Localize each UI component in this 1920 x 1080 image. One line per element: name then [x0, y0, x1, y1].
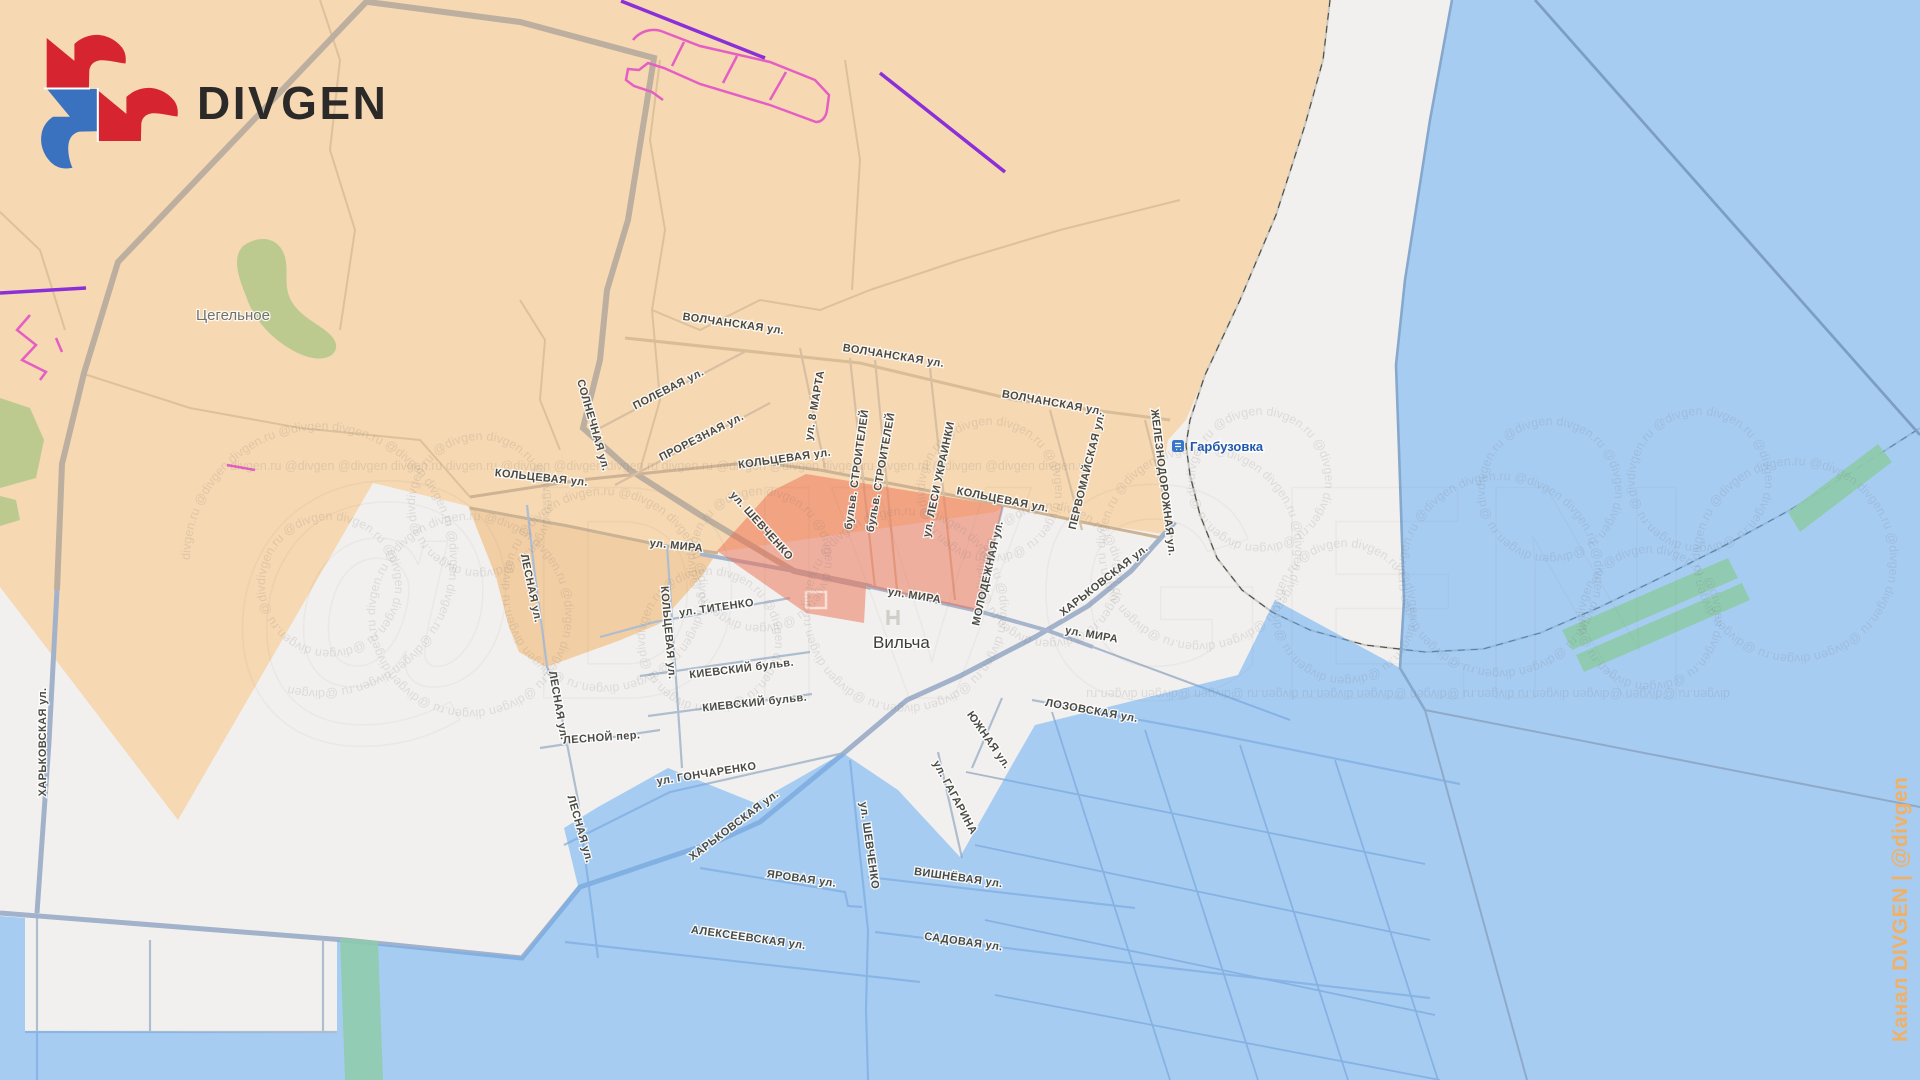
svg-text:ХАРЬКОВСКАЯ ул.: ХАРЬКОВСКАЯ ул.	[37, 688, 49, 797]
svg-text:@DIVGEN: @DIVGEN	[225, 421, 1697, 763]
svg-text:Канал DIVGEN | @divgen: Канал DIVGEN | @divgen	[1889, 776, 1912, 1042]
svg-text:DIVGEN: DIVGEN	[197, 77, 388, 129]
svg-text:Цегельное: Цегельное	[196, 307, 270, 324]
